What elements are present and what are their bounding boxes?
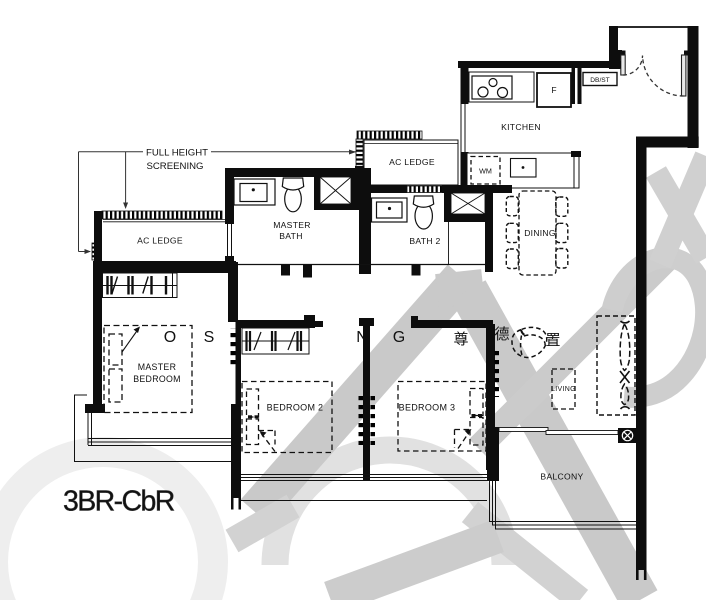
svg-text:BATH: BATH [279,231,302,241]
svg-text:置: 置 [545,332,560,349]
svg-text:LIVING: LIVING [551,386,576,393]
svg-text:BEDROOM: BEDROOM [133,374,181,384]
svg-text:德: 德 [494,325,509,343]
svg-text:F: F [551,85,556,95]
svg-text:FULL HEIGHT: FULL HEIGHT [146,148,208,159]
svg-text:BATH 2: BATH 2 [409,236,440,246]
svg-text:AC LEDGE: AC LEDGE [137,236,183,246]
svg-text:DB/ST: DB/ST [590,77,609,84]
svg-text:BEDROOM 3: BEDROOM 3 [399,403,456,413]
svg-text:S: S [204,329,215,346]
svg-text:BEDROOM 2: BEDROOM 2 [267,403,324,413]
svg-text:MASTER: MASTER [273,220,311,230]
svg-text:O: O [164,329,176,346]
svg-text:SCREENING: SCREENING [146,161,203,172]
svg-text:G: G [393,329,405,346]
svg-text:BALCONY: BALCONY [540,472,583,482]
svg-text:3BR-CbR: 3BR-CbR [63,486,175,518]
svg-text:MASTER: MASTER [138,362,176,372]
svg-text:DINING: DINING [524,228,556,238]
svg-text:尊: 尊 [453,331,468,348]
svg-text:WM: WM [479,167,492,176]
svg-text:AC LEDGE: AC LEDGE [389,157,435,167]
svg-text:KITCHEN: KITCHEN [501,122,541,132]
